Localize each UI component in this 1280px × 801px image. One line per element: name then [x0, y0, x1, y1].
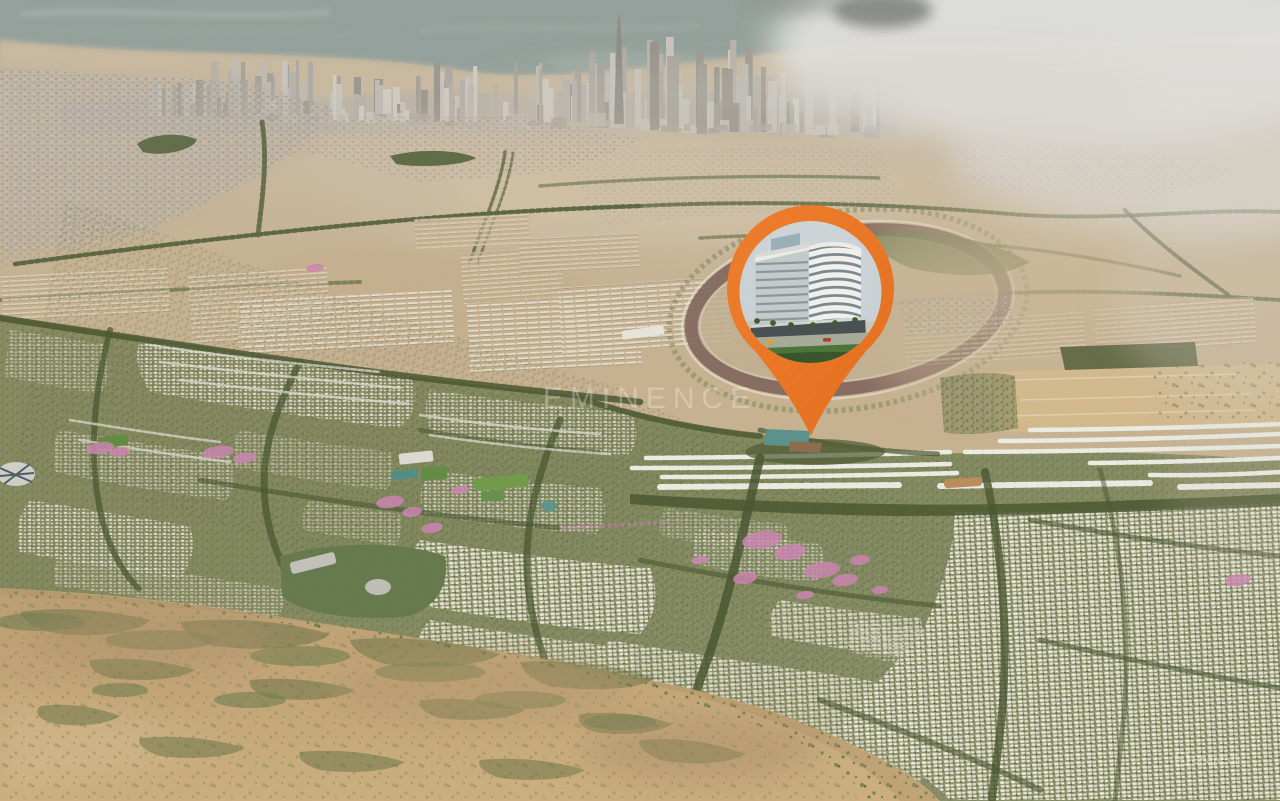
svg-text:S: S	[1179, 755, 1185, 765]
svg-text:SnapEdit: SnapEdit	[1192, 753, 1241, 767]
svg-text:EMINENCE: EMINENCE	[543, 382, 757, 415]
